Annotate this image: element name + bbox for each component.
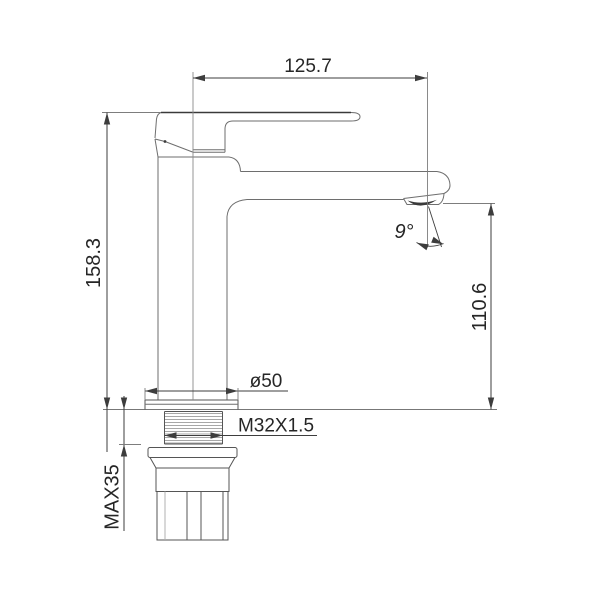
nut-knurl-section (157, 492, 228, 541)
dimension-thread-spec: M32X1.5 (165, 416, 318, 439)
label-max-deck-thickness: MAX35 (102, 464, 124, 530)
lever-underside (225, 121, 351, 152)
faucet-dimension-drawing: 125.7 158.3 110.6 9° ø50 M32X1.5 (0, 0, 600, 600)
arrowhead-bottom (121, 445, 127, 457)
label-spout-reach: 125.7 (284, 56, 332, 77)
body-spout-fillet (227, 200, 247, 217)
arrowhead-top (488, 204, 494, 216)
cartridge-seam-lines (193, 150, 226, 153)
aerator-housing-line (404, 194, 445, 199)
flange-witness-ticks (145, 388, 238, 400)
mounting-flange (145, 400, 238, 410)
arrowhead-left (145, 388, 157, 394)
handle-boot-lower-link (155, 139, 158, 157)
label-spout-angle: 9° (394, 221, 413, 243)
label-overall-height: 158.3 (83, 238, 105, 288)
mounting-nut (148, 448, 237, 541)
dimension-flange-diameter: ø50 (145, 371, 288, 400)
drawing-canvas: 125.7 158.3 110.6 9° ø50 M32X1.5 (0, 0, 600, 600)
handle-boot-left-edge (155, 113, 161, 139)
arrowhead-bottom (104, 398, 110, 410)
knurl-lines (187, 492, 223, 541)
nut-flange (148, 448, 237, 458)
arrowhead-bottom (488, 398, 494, 410)
label-flange-diameter: ø50 (250, 371, 283, 392)
lever-end-cap (351, 113, 360, 122)
label-spout-height: 110.6 (469, 283, 491, 332)
handle-lever (155, 113, 360, 158)
spout-tip-outer (437, 172, 450, 194)
arrowhead-top (121, 398, 127, 410)
faucet-body (158, 157, 247, 400)
arrowhead-left (193, 75, 205, 81)
arrowhead-right (226, 388, 238, 394)
dimension-spout-height: 110.6 (443, 204, 495, 410)
nut-taper (150, 458, 235, 469)
handle-boot-bottom (155, 139, 193, 152)
arrowhead-top (104, 113, 110, 125)
label-thread-spec: M32X1.5 (238, 416, 314, 437)
body-right-top-corner (229, 157, 241, 172)
angle-arrowhead-left (415, 240, 429, 250)
handle-boot-joint-dot (164, 140, 167, 143)
dimension-spout-reach: 125.7 (193, 56, 428, 400)
spout (241, 172, 451, 206)
arrowhead-right (415, 75, 427, 81)
thread-hatching (165, 414, 222, 444)
nut-body (156, 468, 229, 492)
dimension-spout-angle: 9° (394, 207, 444, 251)
